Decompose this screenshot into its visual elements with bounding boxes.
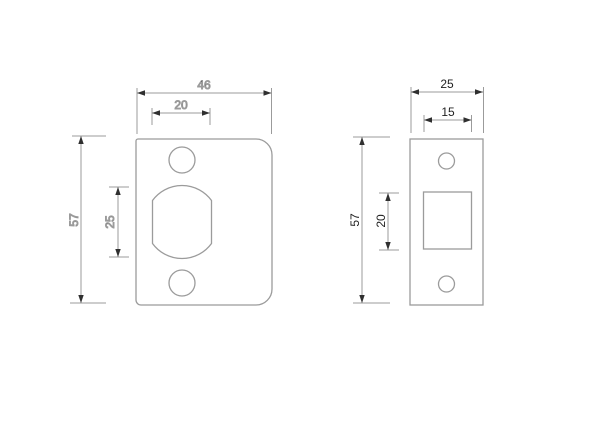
arrow-down-icon (115, 249, 120, 257)
dim-label: 46 (197, 78, 211, 92)
arrow-up-icon (78, 136, 83, 144)
dim-label: 20 (174, 98, 188, 112)
left-dim-cutout-width: 20 (152, 98, 210, 125)
dim-label: 25 (440, 77, 454, 91)
left-top-screw-hole (169, 147, 195, 173)
right-top-screw-hole (439, 153, 455, 169)
arrow-left-icon (137, 90, 145, 95)
dim-label: 15 (441, 105, 455, 119)
arrow-up-icon (385, 193, 390, 201)
left-plate-outline (136, 139, 272, 305)
arrow-left-icon (411, 89, 419, 94)
dim-label: 57 (348, 213, 362, 227)
arrow-left-icon (424, 117, 432, 122)
drawing-canvas: 46 20 57 25 (0, 0, 600, 424)
arrow-down-icon (359, 295, 364, 303)
arrow-down-icon (385, 242, 390, 250)
left-dim-cutout-height: 25 (103, 187, 129, 257)
arrow-right-icon (464, 117, 472, 122)
left-dim-overall-height: 57 (67, 136, 106, 303)
left-bottom-screw-hole (169, 270, 195, 296)
right-dim-hole-width: 15 (424, 105, 472, 132)
dim-label: 20 (374, 214, 388, 228)
right-dim-hole-height: 20 (374, 193, 399, 250)
arrow-right-icon (202, 110, 210, 115)
left-latch-cutout (153, 185, 212, 258)
arrow-down-icon (78, 295, 83, 303)
right-latch-hole (424, 192, 472, 249)
dim-label: 25 (103, 215, 117, 229)
technical-drawing: 46 20 57 25 (0, 0, 600, 424)
arrow-right-icon (475, 89, 483, 94)
arrow-left-icon (152, 110, 160, 115)
right-bottom-screw-hole (439, 276, 455, 292)
arrow-up-icon (115, 187, 120, 195)
right-view: 25 15 57 20 (348, 77, 484, 305)
left-dim-overall-width: 46 (137, 78, 272, 134)
arrow-up-icon (359, 137, 364, 145)
dim-label: 57 (67, 213, 81, 227)
arrow-right-icon (264, 90, 272, 95)
left-view: 46 20 57 25 (67, 78, 272, 305)
